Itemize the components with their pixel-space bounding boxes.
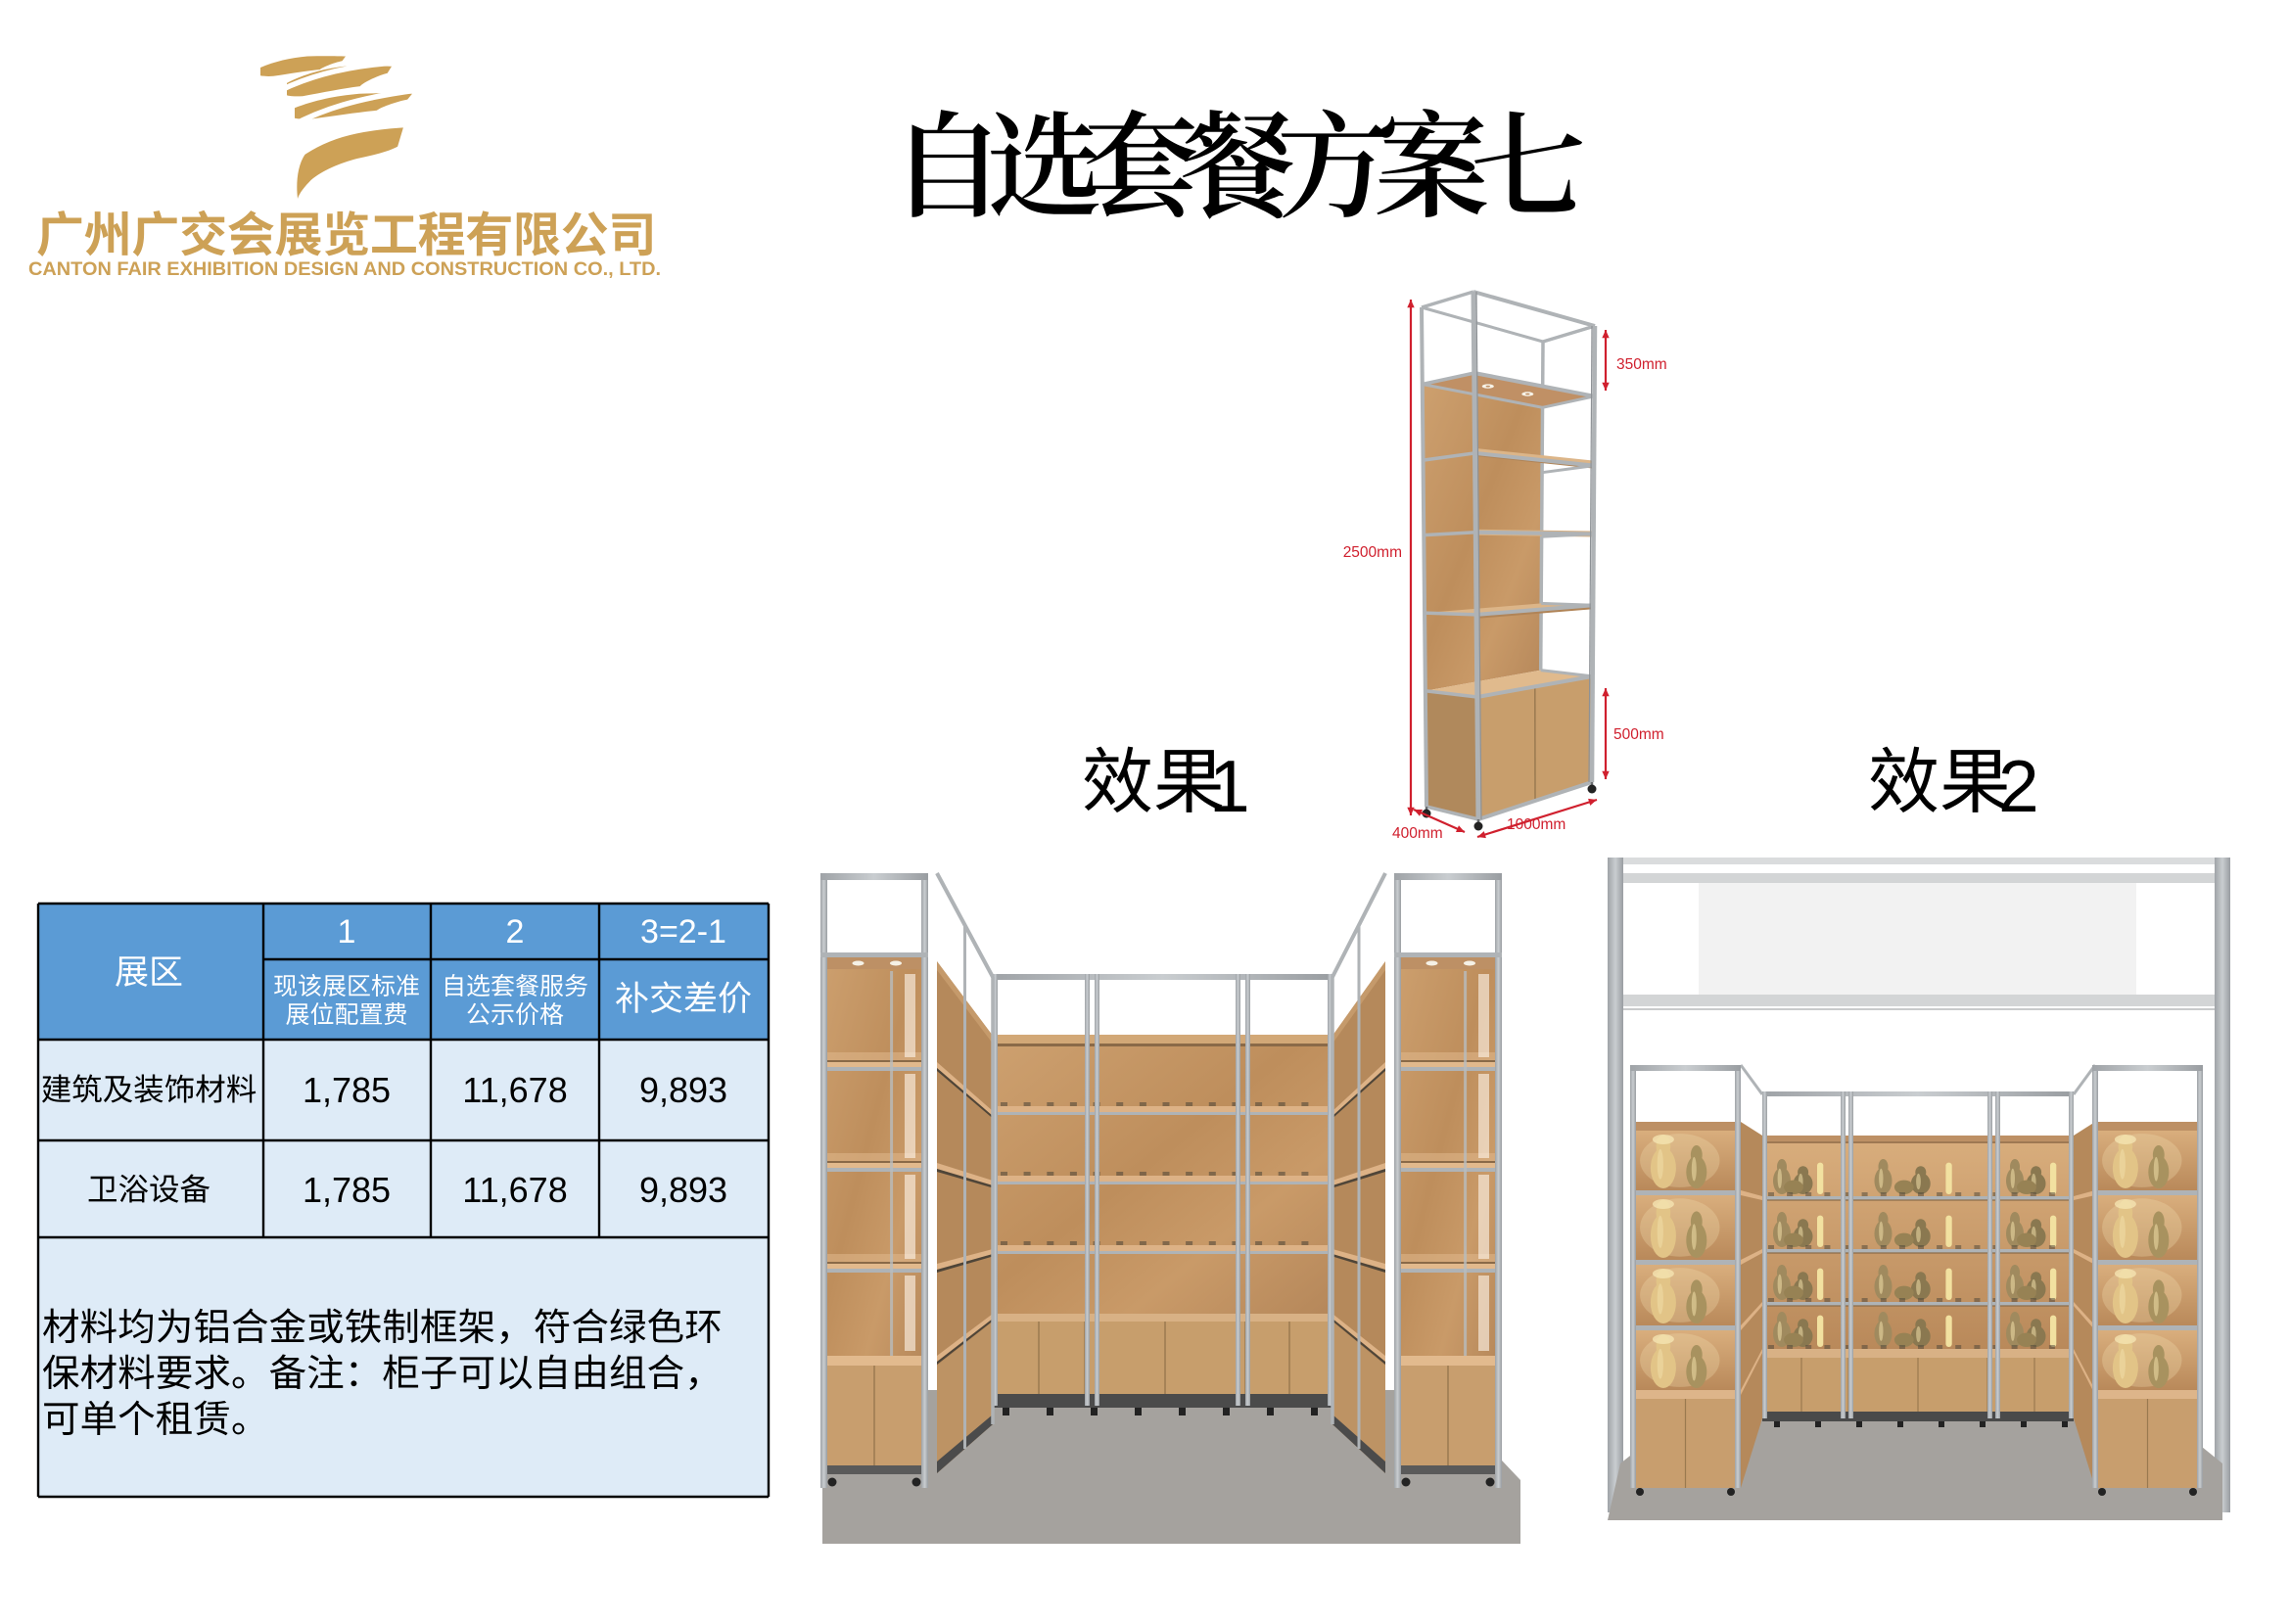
svg-text:1,785: 1,785 (303, 1070, 391, 1110)
svg-text:500mm: 500mm (1613, 726, 1664, 743)
svg-text:3=2-1: 3=2-1 (640, 913, 726, 951)
svg-text:350mm: 350mm (1616, 356, 1667, 373)
svg-text:2: 2 (1998, 745, 2039, 827)
svg-text:400mm: 400mm (1392, 825, 1443, 842)
svg-text:1: 1 (338, 913, 356, 951)
svg-text:11,678: 11,678 (462, 1170, 567, 1210)
svg-text:1: 1 (1209, 745, 1250, 827)
svg-text:9,893: 9,893 (639, 1170, 727, 1210)
svg-text:2: 2 (506, 913, 525, 951)
svg-text:11,678: 11,678 (462, 1070, 567, 1110)
svg-text:CANTON FAIR EXHIBITION DESIGN: CANTON FAIR EXHIBITION DESIGN AND CONSTR… (28, 258, 661, 280)
svg-text:1,785: 1,785 (303, 1170, 391, 1210)
svg-text:1000mm: 1000mm (1507, 816, 1566, 833)
svg-text:2500mm: 2500mm (1343, 544, 1402, 561)
svg-text:9,893: 9,893 (639, 1070, 727, 1110)
